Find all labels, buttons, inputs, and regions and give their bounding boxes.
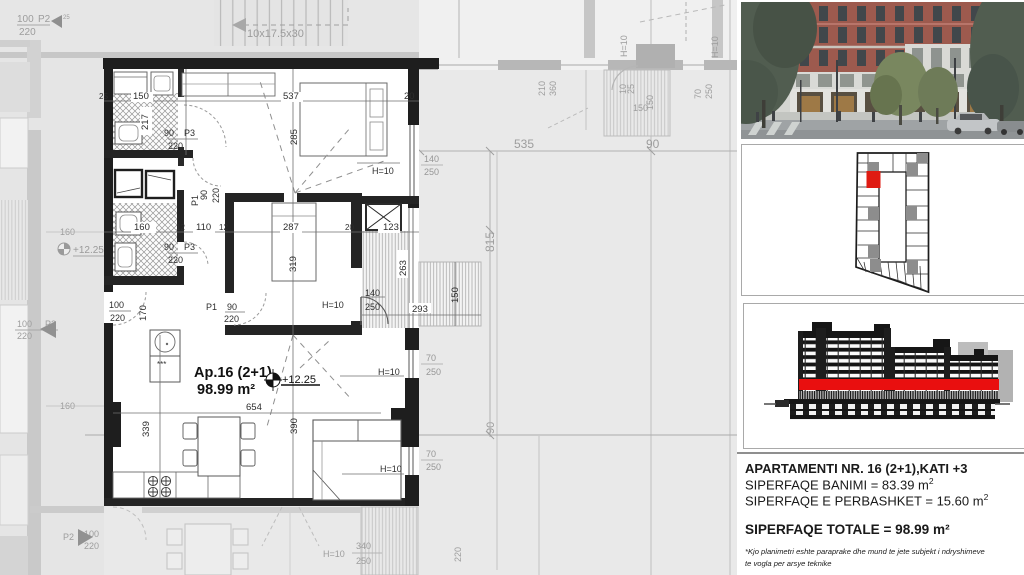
svg-text:***: *** (157, 360, 166, 369)
svg-text:100: 100 (17, 319, 32, 329)
svg-text:217: 217 (140, 114, 151, 130)
svg-text:160: 160 (134, 222, 150, 233)
svg-text:H=10: H=10 (378, 367, 400, 377)
svg-text:287: 287 (283, 222, 299, 233)
svg-text:H=10: H=10 (372, 166, 394, 176)
svg-text:P2: P2 (63, 532, 74, 542)
svg-text:150: 150 (645, 95, 655, 110)
svg-text:250: 250 (426, 367, 441, 377)
svg-text:H=10: H=10 (710, 36, 720, 58)
svg-text:110: 110 (196, 222, 211, 233)
svg-text:P3: P3 (184, 242, 195, 252)
svg-text:H=10: H=10 (323, 549, 345, 559)
svg-text:220: 220 (211, 188, 221, 203)
svg-text:390: 390 (289, 418, 300, 434)
svg-text:H=10: H=10 (619, 35, 629, 57)
svg-text:P3: P3 (184, 128, 195, 138)
svg-text:170: 170 (138, 305, 149, 321)
svg-text:339: 339 (141, 421, 152, 437)
svg-text:+12.25: +12.25 (282, 374, 316, 386)
svg-text:250: 250 (424, 167, 439, 177)
svg-text:220: 220 (224, 314, 239, 324)
svg-text:250: 250 (365, 302, 380, 312)
svg-text:210: 210 (537, 81, 547, 96)
svg-text:90: 90 (164, 242, 174, 252)
svg-text:25: 25 (63, 15, 70, 21)
svg-text:140: 140 (424, 154, 439, 164)
svg-text:90: 90 (646, 137, 660, 151)
svg-text:H=10: H=10 (380, 464, 402, 474)
svg-text:220: 220 (19, 27, 36, 38)
svg-text:263: 263 (398, 260, 409, 276)
svg-text:150: 150 (450, 287, 461, 303)
svg-text:537: 537 (283, 91, 299, 102)
svg-text:250: 250 (426, 462, 441, 472)
svg-text:10x17.5x30: 10x17.5x30 (247, 28, 304, 40)
svg-text:P1: P1 (206, 302, 217, 312)
svg-text:220: 220 (84, 541, 99, 551)
svg-text:220: 220 (453, 547, 463, 562)
svg-text:360: 360 (548, 81, 558, 96)
svg-text:+12.25: +12.25 (73, 245, 104, 256)
svg-text:25: 25 (99, 92, 108, 101)
svg-text:220: 220 (168, 141, 183, 151)
svg-text:340: 340 (356, 541, 371, 551)
svg-text:123: 123 (383, 222, 399, 233)
svg-text:12: 12 (176, 223, 185, 232)
svg-text:H=10: H=10 (322, 300, 344, 310)
svg-text:220: 220 (168, 255, 183, 265)
svg-text:70: 70 (693, 89, 703, 99)
svg-text:100: 100 (109, 300, 124, 310)
svg-text:293: 293 (412, 304, 428, 315)
svg-text:20: 20 (345, 223, 354, 232)
svg-text:535: 535 (514, 137, 534, 151)
svg-text:Ap.16 (2+1): Ap.16 (2+1) (194, 365, 272, 381)
svg-text:90: 90 (199, 190, 209, 200)
svg-text:285: 285 (289, 129, 300, 145)
svg-text:98.99 m²: 98.99 m² (197, 382, 255, 398)
svg-text:25: 25 (626, 84, 636, 94)
svg-text:140: 140 (365, 288, 380, 298)
svg-text:100: 100 (17, 14, 34, 25)
svg-text:250: 250 (356, 556, 371, 566)
svg-text:12: 12 (219, 223, 228, 232)
svg-text:220: 220 (110, 313, 125, 323)
svg-text:90: 90 (164, 128, 174, 138)
svg-text:70: 70 (426, 449, 436, 459)
svg-text:90: 90 (227, 302, 237, 312)
svg-text:220: 220 (17, 331, 32, 341)
svg-text:654: 654 (246, 402, 262, 413)
svg-text:250: 250 (704, 84, 714, 99)
svg-text:20: 20 (404, 91, 415, 102)
svg-text:70: 70 (426, 353, 436, 363)
svg-text:150: 150 (133, 91, 149, 102)
svg-text:319: 319 (288, 256, 299, 272)
svg-text:P2: P2 (38, 14, 51, 25)
